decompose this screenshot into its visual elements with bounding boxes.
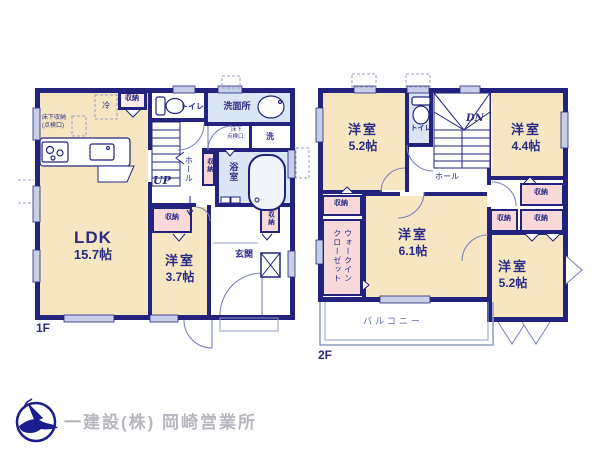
floorplan-image: LDK 15.7帖 洋室 3.7帖 玄関 洗面所 トイレ 浴室 UP ホール 冷… xyxy=(0,0,600,450)
label-hall-1f: ホール xyxy=(184,156,193,192)
floor2-label: 2F xyxy=(318,349,332,363)
wall xyxy=(362,192,366,297)
label-underfloor-hatch-line1: 床下 xyxy=(231,127,242,133)
wall xyxy=(429,93,433,147)
label-stairs-up: UP xyxy=(153,175,171,188)
wall xyxy=(207,205,211,315)
label-underfloor-hatch-line2: 点検口 xyxy=(227,134,244,140)
label-toilet-2f: トイレ xyxy=(411,125,432,133)
room-area-ldk: 15.7帖 xyxy=(74,248,112,263)
label-closet-1f-bedroom: 収納 xyxy=(165,214,179,222)
wall xyxy=(490,176,565,180)
room-label-bedroom-2f-tr: 洋室 xyxy=(511,123,541,138)
room-area-bedroom-2f-br: 5.2帖 xyxy=(499,277,528,291)
wall xyxy=(204,93,208,122)
room-area-bedroom-2f-tr: 4.4帖 xyxy=(512,140,541,154)
label-walk-in-closet: ウォークインクローゼット xyxy=(331,229,353,287)
company-name: 一建設(株) 岡崎営業所 xyxy=(64,408,257,433)
room-label-bedroom-2f-mid: 洋室 xyxy=(398,228,428,243)
label-entrance: 玄関 xyxy=(235,249,253,259)
label-stairs-down: DN xyxy=(466,113,484,125)
wall xyxy=(424,192,487,196)
wall xyxy=(487,93,491,185)
label-hall-2f: ホール xyxy=(435,172,459,181)
room-area-bedroom-2f-mid: 6.1帖 xyxy=(399,245,428,259)
room-label-ldk: LDK xyxy=(74,228,112,248)
label-closet-1f-top: 収納 xyxy=(125,95,139,103)
room-area-bedroom-2f-tl: 5.2帖 xyxy=(349,140,378,154)
room-label-bedroom-1f: 洋室 xyxy=(165,254,195,269)
room-label-bedroom-2f-br: 洋室 xyxy=(498,260,528,275)
company-logo xyxy=(12,397,60,445)
label-closet-2f-right3: 収納 xyxy=(534,215,548,223)
label-washroom: 洗面所 xyxy=(223,101,250,111)
label-bath: 浴室 xyxy=(228,162,238,188)
wall xyxy=(407,143,433,147)
wall xyxy=(362,192,400,196)
room-area-bedroom-1f: 3.7帖 xyxy=(166,271,195,285)
wall xyxy=(215,150,219,203)
wall xyxy=(152,118,206,122)
label-balcony: バルコニー xyxy=(363,316,423,326)
label-underfloor-storage-line2: (点検口) xyxy=(42,123,64,130)
label-washer: 洗 xyxy=(266,132,274,141)
wall xyxy=(148,182,152,315)
wall xyxy=(204,122,290,126)
room-label-bedroom-2f-tl: 洋室 xyxy=(348,123,378,138)
label-closet-2f-right1: 収納 xyxy=(534,189,548,197)
label-fridge: 冷 xyxy=(102,101,110,110)
wall xyxy=(215,203,290,207)
label-closet-1f-hall: 収納 xyxy=(205,158,212,180)
floor1-label: 1F xyxy=(36,322,50,336)
label-closet-1f-entrance: 収納 xyxy=(266,211,273,233)
label-toilet-1f: トイレ xyxy=(180,102,204,111)
label-closet-2f-right2: 収納 xyxy=(497,215,511,223)
label-closet-2f-left: 収納 xyxy=(334,200,348,208)
label-underfloor-storage-line1: 床下収納 xyxy=(42,115,66,122)
wall xyxy=(487,207,491,237)
wall xyxy=(148,203,196,207)
